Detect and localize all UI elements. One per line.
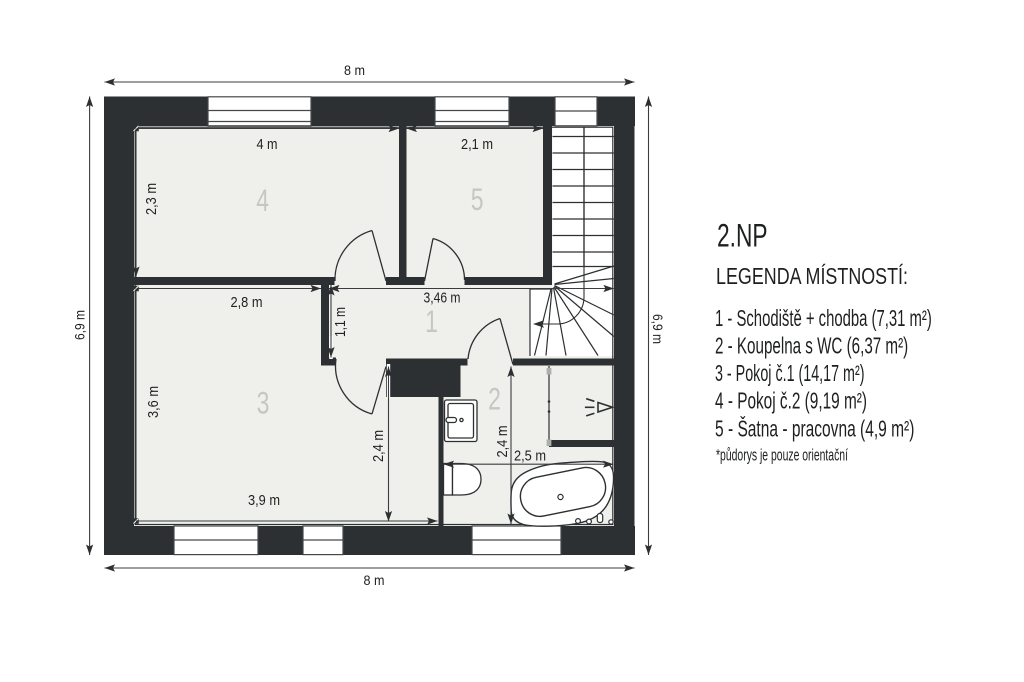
svg-text:3 - Pokoj č.1 (14,17 m²): 3 - Pokoj č.1 (14,17 m²): [715, 360, 865, 386]
svg-text:3: 3: [257, 385, 270, 420]
svg-text:6,9 m: 6,9 m: [72, 310, 88, 340]
svg-text:2,3 m: 2,3 m: [143, 183, 160, 215]
svg-text:2,4 m: 2,4 m: [370, 430, 387, 462]
svg-text:2: 2: [488, 381, 501, 416]
svg-text:8 m: 8 m: [344, 62, 365, 78]
svg-text:4 - Pokoj č.2 (9,19 m²): 4 - Pokoj č.2 (9,19 m²): [715, 388, 867, 414]
svg-text:6,9 m: 6,9 m: [650, 314, 666, 344]
svg-text:1 - Schodiště + chodba (7,31 m: 1 - Schodiště + chodba (7,31 m²): [715, 305, 932, 331]
svg-text:1,1 m: 1,1 m: [332, 307, 349, 337]
svg-text:2,8 m: 2,8 m: [231, 294, 263, 311]
svg-text:2 - Koupelna s WC (6,37 m²): 2 - Koupelna s WC (6,37 m²): [715, 333, 908, 359]
svg-text:*půdorys je pouze orientační: *půdorys je pouze orientační: [716, 447, 848, 465]
svg-text:4 m: 4 m: [257, 136, 278, 153]
svg-text:1: 1: [425, 303, 438, 338]
svg-text:2,5 m: 2,5 m: [514, 448, 546, 465]
svg-text:5: 5: [471, 181, 484, 216]
svg-text:3,9 m: 3,9 m: [248, 492, 280, 509]
svg-text:3,6 m: 3,6 m: [145, 386, 162, 418]
svg-text:2,1 m: 2,1 m: [461, 136, 493, 153]
svg-text:LEGENDA MÍSTNOSTÍ:: LEGENDA MÍSTNOSTÍ:: [716, 263, 908, 289]
svg-text:8 m: 8 m: [364, 572, 385, 588]
svg-text:2,4 m: 2,4 m: [494, 426, 511, 458]
svg-text:2.NP: 2.NP: [717, 218, 768, 254]
svg-text:4: 4: [256, 182, 269, 217]
svg-text:5 - Šatna - pracovna (4,9 m²): 5 - Šatna - pracovna (4,9 m²): [715, 415, 914, 441]
